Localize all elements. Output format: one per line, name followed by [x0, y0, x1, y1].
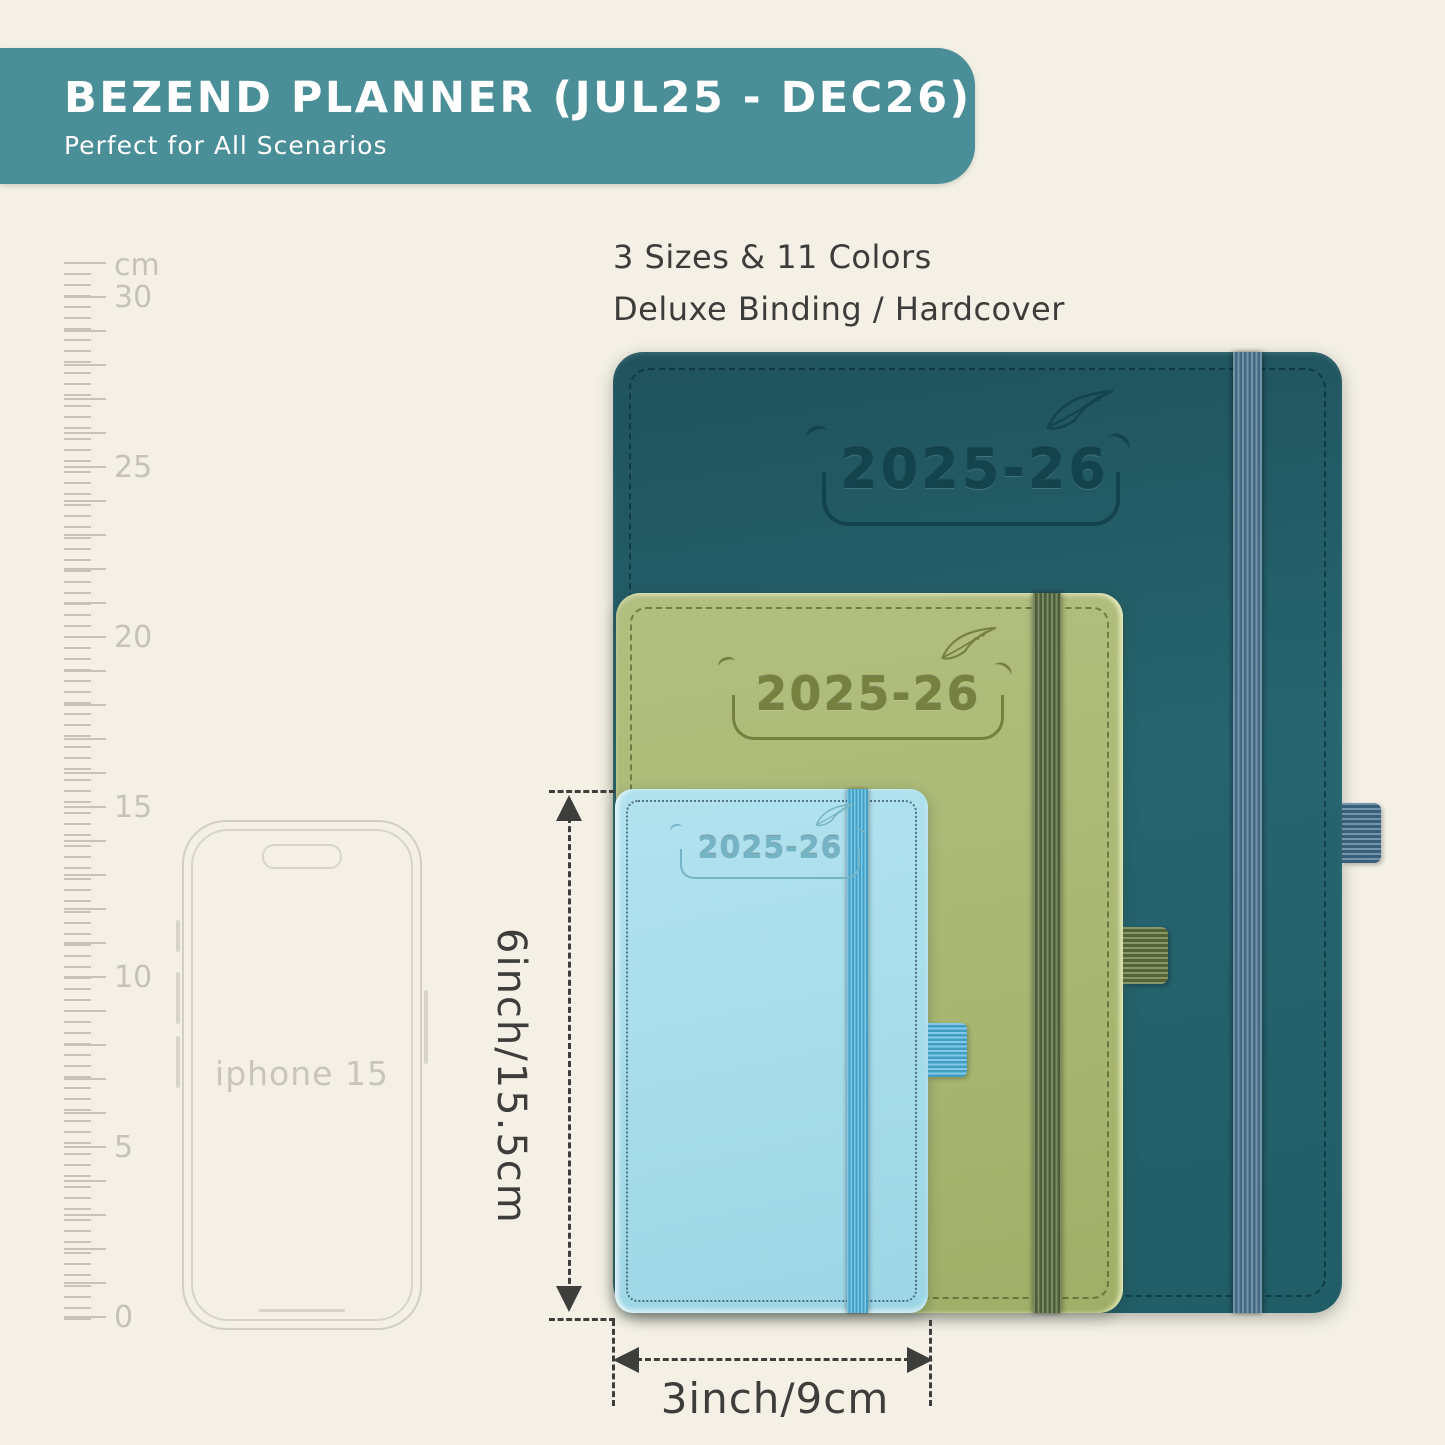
page-subtitle: Perfect for All Scenarios	[64, 131, 975, 160]
height-dimension-line	[568, 808, 571, 1302]
phone-speaker-line	[259, 1309, 345, 1312]
pen-loop	[1123, 927, 1168, 984]
elastic-band	[1033, 593, 1061, 1313]
phone-volume-up-outline	[176, 972, 180, 1024]
phone-volume-down-outline	[176, 1036, 180, 1088]
ruler-major-ticks	[64, 262, 106, 1320]
arrow-down-icon	[556, 1286, 582, 1312]
ruler-unit-label: cm	[114, 248, 160, 283]
ruler: cm 30 25 20 15 10 5 0	[50, 250, 200, 1340]
dynamic-island-icon	[262, 844, 342, 869]
elastic-band	[1233, 352, 1262, 1313]
arrow-left-icon	[613, 1347, 639, 1373]
product-image: BEZEND PLANNER (JUL25 - DEC26) Perfect f…	[0, 0, 1445, 1445]
phone-action-button-outline	[176, 920, 180, 952]
ruler-label-15: 15	[114, 790, 152, 825]
feather-icon	[1040, 386, 1118, 438]
ruler-label-20: 20	[114, 620, 152, 655]
ruler-label-5: 5	[114, 1130, 133, 1165]
arrow-up-icon	[556, 795, 582, 821]
feature-line-sizes: 3 Sizes & 11 Colors	[613, 232, 1065, 284]
height-extension-line-bottom	[549, 1318, 615, 1321]
ruler-label-10: 10	[114, 960, 152, 995]
ruler-label-0: 0	[114, 1300, 133, 1335]
width-dimension-label: 3inch/9cm	[610, 1374, 940, 1423]
logo-bracket	[822, 472, 1120, 526]
height-extension-line-top	[549, 790, 615, 793]
header-banner: BEZEND PLANNER (JUL25 - DEC26) Perfect f…	[0, 48, 975, 184]
logo-bracket	[680, 849, 860, 879]
cover-logo: 2025-26	[746, 667, 990, 721]
height-dimension-label: 6inch/15.5cm	[488, 928, 534, 1225]
phone-label: iphone 15	[184, 1054, 420, 1093]
pen-loop	[1342, 803, 1381, 863]
feature-text: 3 Sizes & 11 Colors Deluxe Binding / Har…	[613, 232, 1065, 336]
width-dimension-line	[636, 1358, 910, 1361]
ruler-label-25: 25	[114, 450, 152, 485]
planner-small-blue: 2025-26	[615, 789, 928, 1313]
page-title: BEZEND PLANNER (JUL25 - DEC26)	[64, 73, 975, 123]
bracket-arc-left	[716, 655, 738, 675]
cover-logo: 2025-26	[840, 438, 1102, 501]
bracket-arc-left	[669, 822, 685, 836]
cover-logo: 2025-26	[690, 831, 850, 866]
feature-line-binding: Deluxe Binding / Hardcover	[613, 284, 1065, 336]
logo-bracket	[732, 695, 1004, 740]
feather-icon	[936, 623, 1000, 667]
pen-loop	[928, 1023, 967, 1077]
phone-outline: iphone 15	[182, 820, 422, 1330]
feather-icon	[812, 801, 856, 831]
phone-power-button-outline	[424, 990, 428, 1064]
bracket-arc-left	[804, 423, 830, 447]
ruler-label-30: 30	[114, 280, 152, 315]
